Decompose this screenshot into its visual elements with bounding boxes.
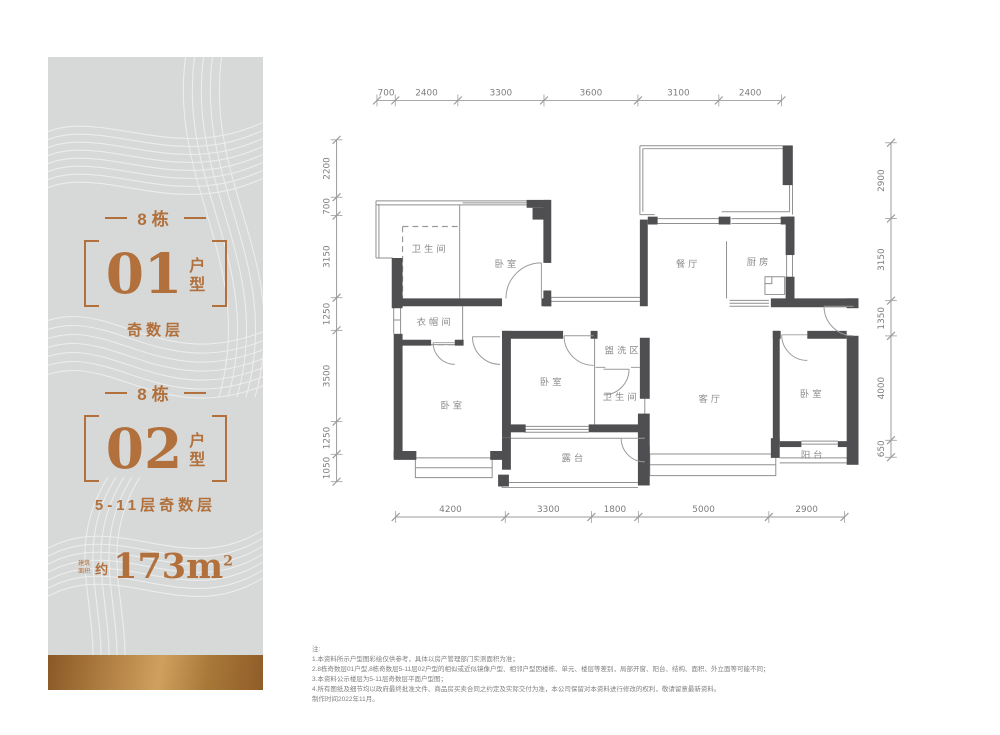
unit-02-building-row: 8栋 [105, 380, 205, 405]
note-line: 1.本资料所示户型图彩绘仅供参考，具体以房产管理部门实测面积为准； [312, 655, 782, 665]
note-line: 制作时间2022年11月。 [312, 695, 782, 705]
dim-label: 3150 [877, 248, 887, 271]
dim-label: 3100 [667, 89, 690, 99]
dim-label: 3150 [323, 245, 333, 268]
unit-02-floors: 5-11层奇数层 [95, 494, 216, 515]
room-label-balcony: 阳台 [801, 449, 826, 460]
dim-label: 4000 [877, 376, 887, 399]
area-block: 建筑 面积 约 173m2 [78, 549, 233, 584]
dim-label: 4200 [439, 505, 462, 515]
note-line: 注: [312, 645, 782, 655]
dim-label: 1250 [323, 302, 333, 325]
dash-decoration [105, 217, 127, 219]
unit-01-bracket: 01 户 型 [84, 240, 228, 307]
dim-label: 650 [877, 440, 887, 457]
dim-label: 700 [323, 198, 333, 215]
room-label-bed1: 卧室 [495, 258, 520, 269]
dim-label: 2200 [323, 157, 333, 180]
dim-label: 2400 [739, 89, 762, 99]
floorplan-area: 卫生间 卧室 衣帽间 餐厅 厨房 盥洗区 卫生间 卧室 卧室 客厅 卧室 露台 … [310, 80, 955, 565]
dim-label: 1250 [323, 426, 333, 449]
dim-label: 1050 [323, 456, 333, 479]
unit-02-suffix: 户 型 [189, 433, 205, 470]
unit-01-floors: 奇数层 [127, 319, 184, 340]
area-approx: 约 [95, 559, 108, 578]
area-sup: 2 [223, 553, 233, 569]
suffix-char: 型 [189, 452, 205, 470]
legal-notes: 注:1.本资料所示户型图彩绘仅供参考，具体以房产管理部门实测面积为准；2.8栋奇… [312, 645, 782, 705]
room-label-terrace: 露台 [562, 452, 587, 463]
unit-01-block: 8栋 01 户 型 奇数层 [84, 205, 228, 340]
unit-02-block: 8栋 02 户 型 5-11层奇数层 [84, 380, 228, 515]
dim-label: 2900 [795, 505, 818, 515]
note-line: 2.8栋奇数层01户型,8栋奇数层5-11层02户型的相似或近似镜像户型、相邻户… [312, 665, 782, 675]
unit-01-suffix: 户 型 [189, 258, 205, 295]
area-prefix-line: 面积 [78, 569, 90, 577]
dash-decoration [184, 392, 206, 394]
note-line: 4.所有图纸及细节均以政府最终批准文件、商品房买卖合同之约定及实际交付为准，本公… [312, 685, 782, 695]
room-label-kitchen: 厨房 [747, 256, 772, 267]
unit-01-building-row: 8栋 [105, 205, 205, 230]
suffix-char: 户 [189, 433, 205, 451]
area-number: 173m [113, 546, 223, 587]
unit-02-number: 02 [106, 421, 183, 476]
gold-bar-decoration [48, 655, 263, 690]
room-label-bath2: 卫生间 [603, 391, 640, 402]
room-label-living: 客厅 [698, 393, 723, 404]
dim-label: 3600 [580, 89, 603, 99]
room-label-cloak: 衣帽间 [417, 316, 454, 327]
unit-01-number: 01 [106, 246, 183, 301]
dim-label: 2400 [415, 89, 438, 99]
room-label-dining: 餐厅 [676, 258, 701, 269]
dim-label: 1350 [877, 307, 887, 330]
area-prefix: 建筑 面积 [78, 561, 90, 577]
dim-label: 5000 [692, 505, 715, 515]
unit-02-building: 8栋 [137, 380, 173, 405]
dim-label: 3300 [537, 505, 560, 515]
area-value: 173m2 [113, 549, 233, 584]
dash-decoration [105, 392, 127, 394]
room-label-bed4: 卧室 [800, 388, 825, 399]
suffix-char: 户 [189, 258, 205, 276]
dim-label: 700 [378, 89, 395, 99]
unit-01-building: 8栋 [137, 205, 173, 230]
suffix-char: 型 [189, 277, 205, 295]
dim-label: 3500 [323, 364, 333, 387]
room-label-wash: 盥洗区 [605, 345, 642, 356]
floorplan-page: { "accent_color": "#b1703c", "wall_color… [0, 0, 1000, 735]
floorplan-svg: 卫生间 卧室 衣帽间 餐厅 厨房 盥洗区 卫生间 卧室 卧室 客厅 卧室 露台 … [310, 80, 955, 565]
dim-label: 2900 [877, 169, 887, 192]
info-panel: 8栋 01 户 型 奇数层 8栋 02 户 型 [48, 57, 263, 690]
dim-label: 3300 [490, 89, 513, 99]
room-label-bed3: 卧室 [440, 400, 465, 411]
dim-label: 1800 [604, 505, 627, 515]
dash-decoration [184, 217, 206, 219]
room-label-bed2: 卧室 [540, 376, 565, 387]
note-line: 3.本资料公示楼层为5-11层奇数层平面户型图； [312, 675, 782, 685]
room-label-bath1: 卫生间 [412, 243, 449, 254]
unit-02-bracket: 02 户 型 [84, 415, 228, 482]
thick-walls [392, 146, 859, 487]
